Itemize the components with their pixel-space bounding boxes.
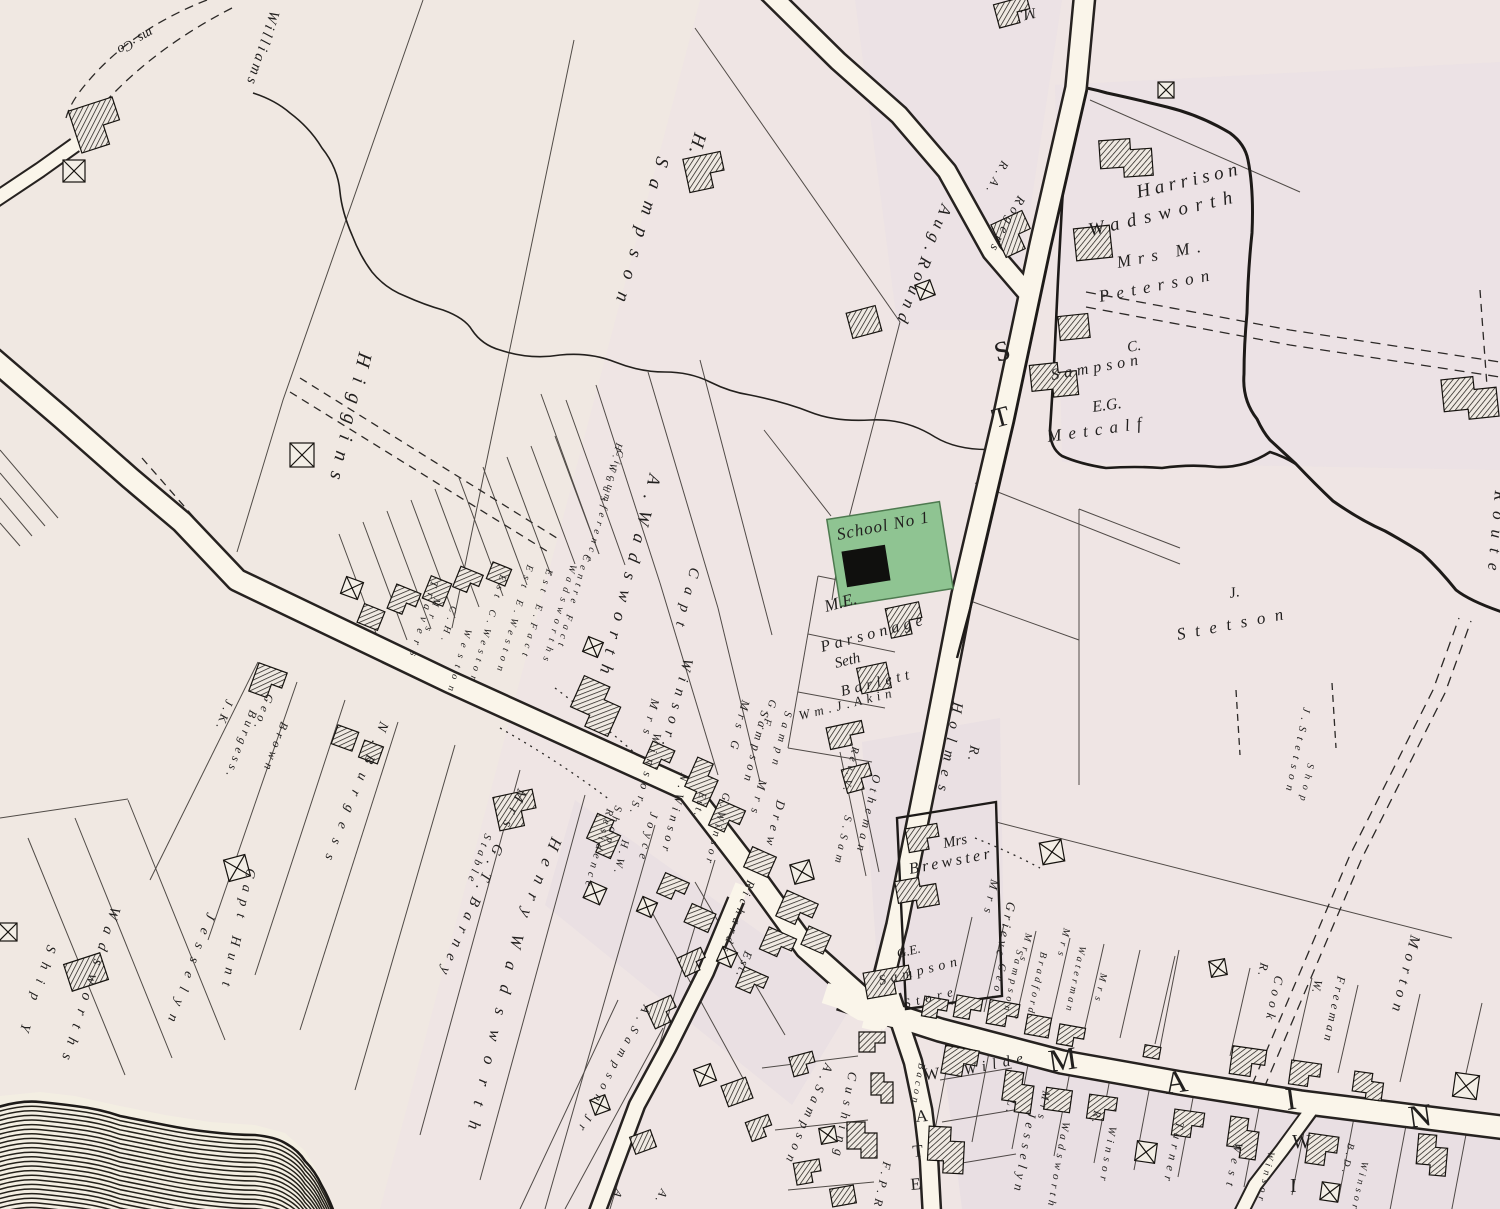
- svg-text:T: T: [912, 1141, 928, 1161]
- svg-text:M: M: [1046, 1039, 1083, 1079]
- svg-text:A: A: [1162, 1062, 1194, 1101]
- svg-text:I: I: [1290, 1175, 1301, 1197]
- svg-text:N: N: [1406, 1096, 1438, 1135]
- svg-text:E: E: [910, 1174, 926, 1194]
- svg-text:R.: R.: [964, 743, 982, 762]
- svg-text:R.: R.: [1255, 960, 1272, 977]
- svg-text:R.: R.: [1089, 1109, 1103, 1124]
- svg-text:A: A: [915, 1106, 933, 1126]
- svg-text:W: W: [1292, 1131, 1315, 1153]
